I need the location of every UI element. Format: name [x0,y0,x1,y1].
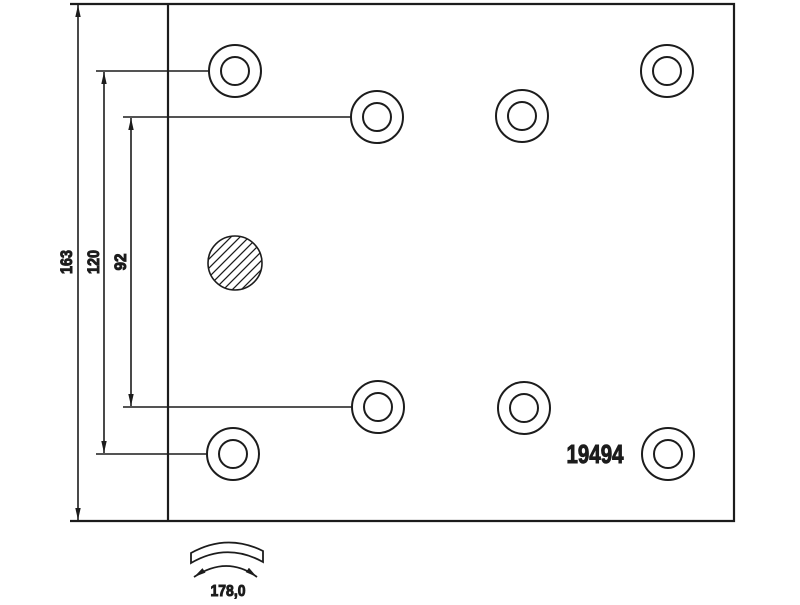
rivet-hole [351,91,403,143]
rivet-hole-inner-circle [510,394,538,422]
dim-92-label: 92 [111,254,130,271]
hatched-hole-circle [208,236,262,290]
arc-profile-symbol: 178,0 [191,542,263,600]
rivet-hole-inner-circle [654,440,682,468]
rivet-hole-outer-circle [351,91,403,143]
rivet-hole-inner-circle [653,57,681,85]
rivet-hole [209,45,261,97]
technical-drawing-canvas: 163 120 92 19494 [0,0,800,600]
rivet-holes-layer [207,45,694,480]
rivet-hole-outer-circle [352,381,404,433]
arc-width-label: 178,0 [211,583,246,600]
dimension-outer-hole-span: 120 [84,71,209,454]
rivet-hole-outer-circle [641,45,693,97]
rivet-hole-outer-circle [498,382,550,434]
hatched-hole-layer [208,236,262,290]
rivet-hole-inner-circle [221,57,249,85]
arc-width-arrow [194,566,257,577]
arc-band-shape [191,542,263,563]
rivet-hole-inner-circle [508,102,536,130]
brake-lining-drawing: 163 120 92 19494 [0,0,800,600]
rivet-hole-outer-circle [496,90,548,142]
rivet-hole-outer-circle [642,428,694,480]
rivet-hole-outer-circle [207,428,259,480]
rivet-hole [642,428,694,480]
dim-163-label: 163 [57,250,76,274]
rivet-hole-inner-circle [363,103,391,131]
rivet-hole [496,90,548,142]
dimension-total-height: 163 [57,5,78,520]
rivet-hole-inner-circle [364,393,392,421]
rivet-hole [498,382,550,434]
rivet-hole [641,45,693,97]
dim-120-label: 120 [84,250,103,274]
part-number-label: 19494 [567,439,624,469]
plate-outline [70,4,734,521]
rivet-hole-outer-circle [209,45,261,97]
rivet-hole [352,381,404,433]
rivet-hole [207,428,259,480]
rivet-hole-inner-circle [219,440,247,468]
